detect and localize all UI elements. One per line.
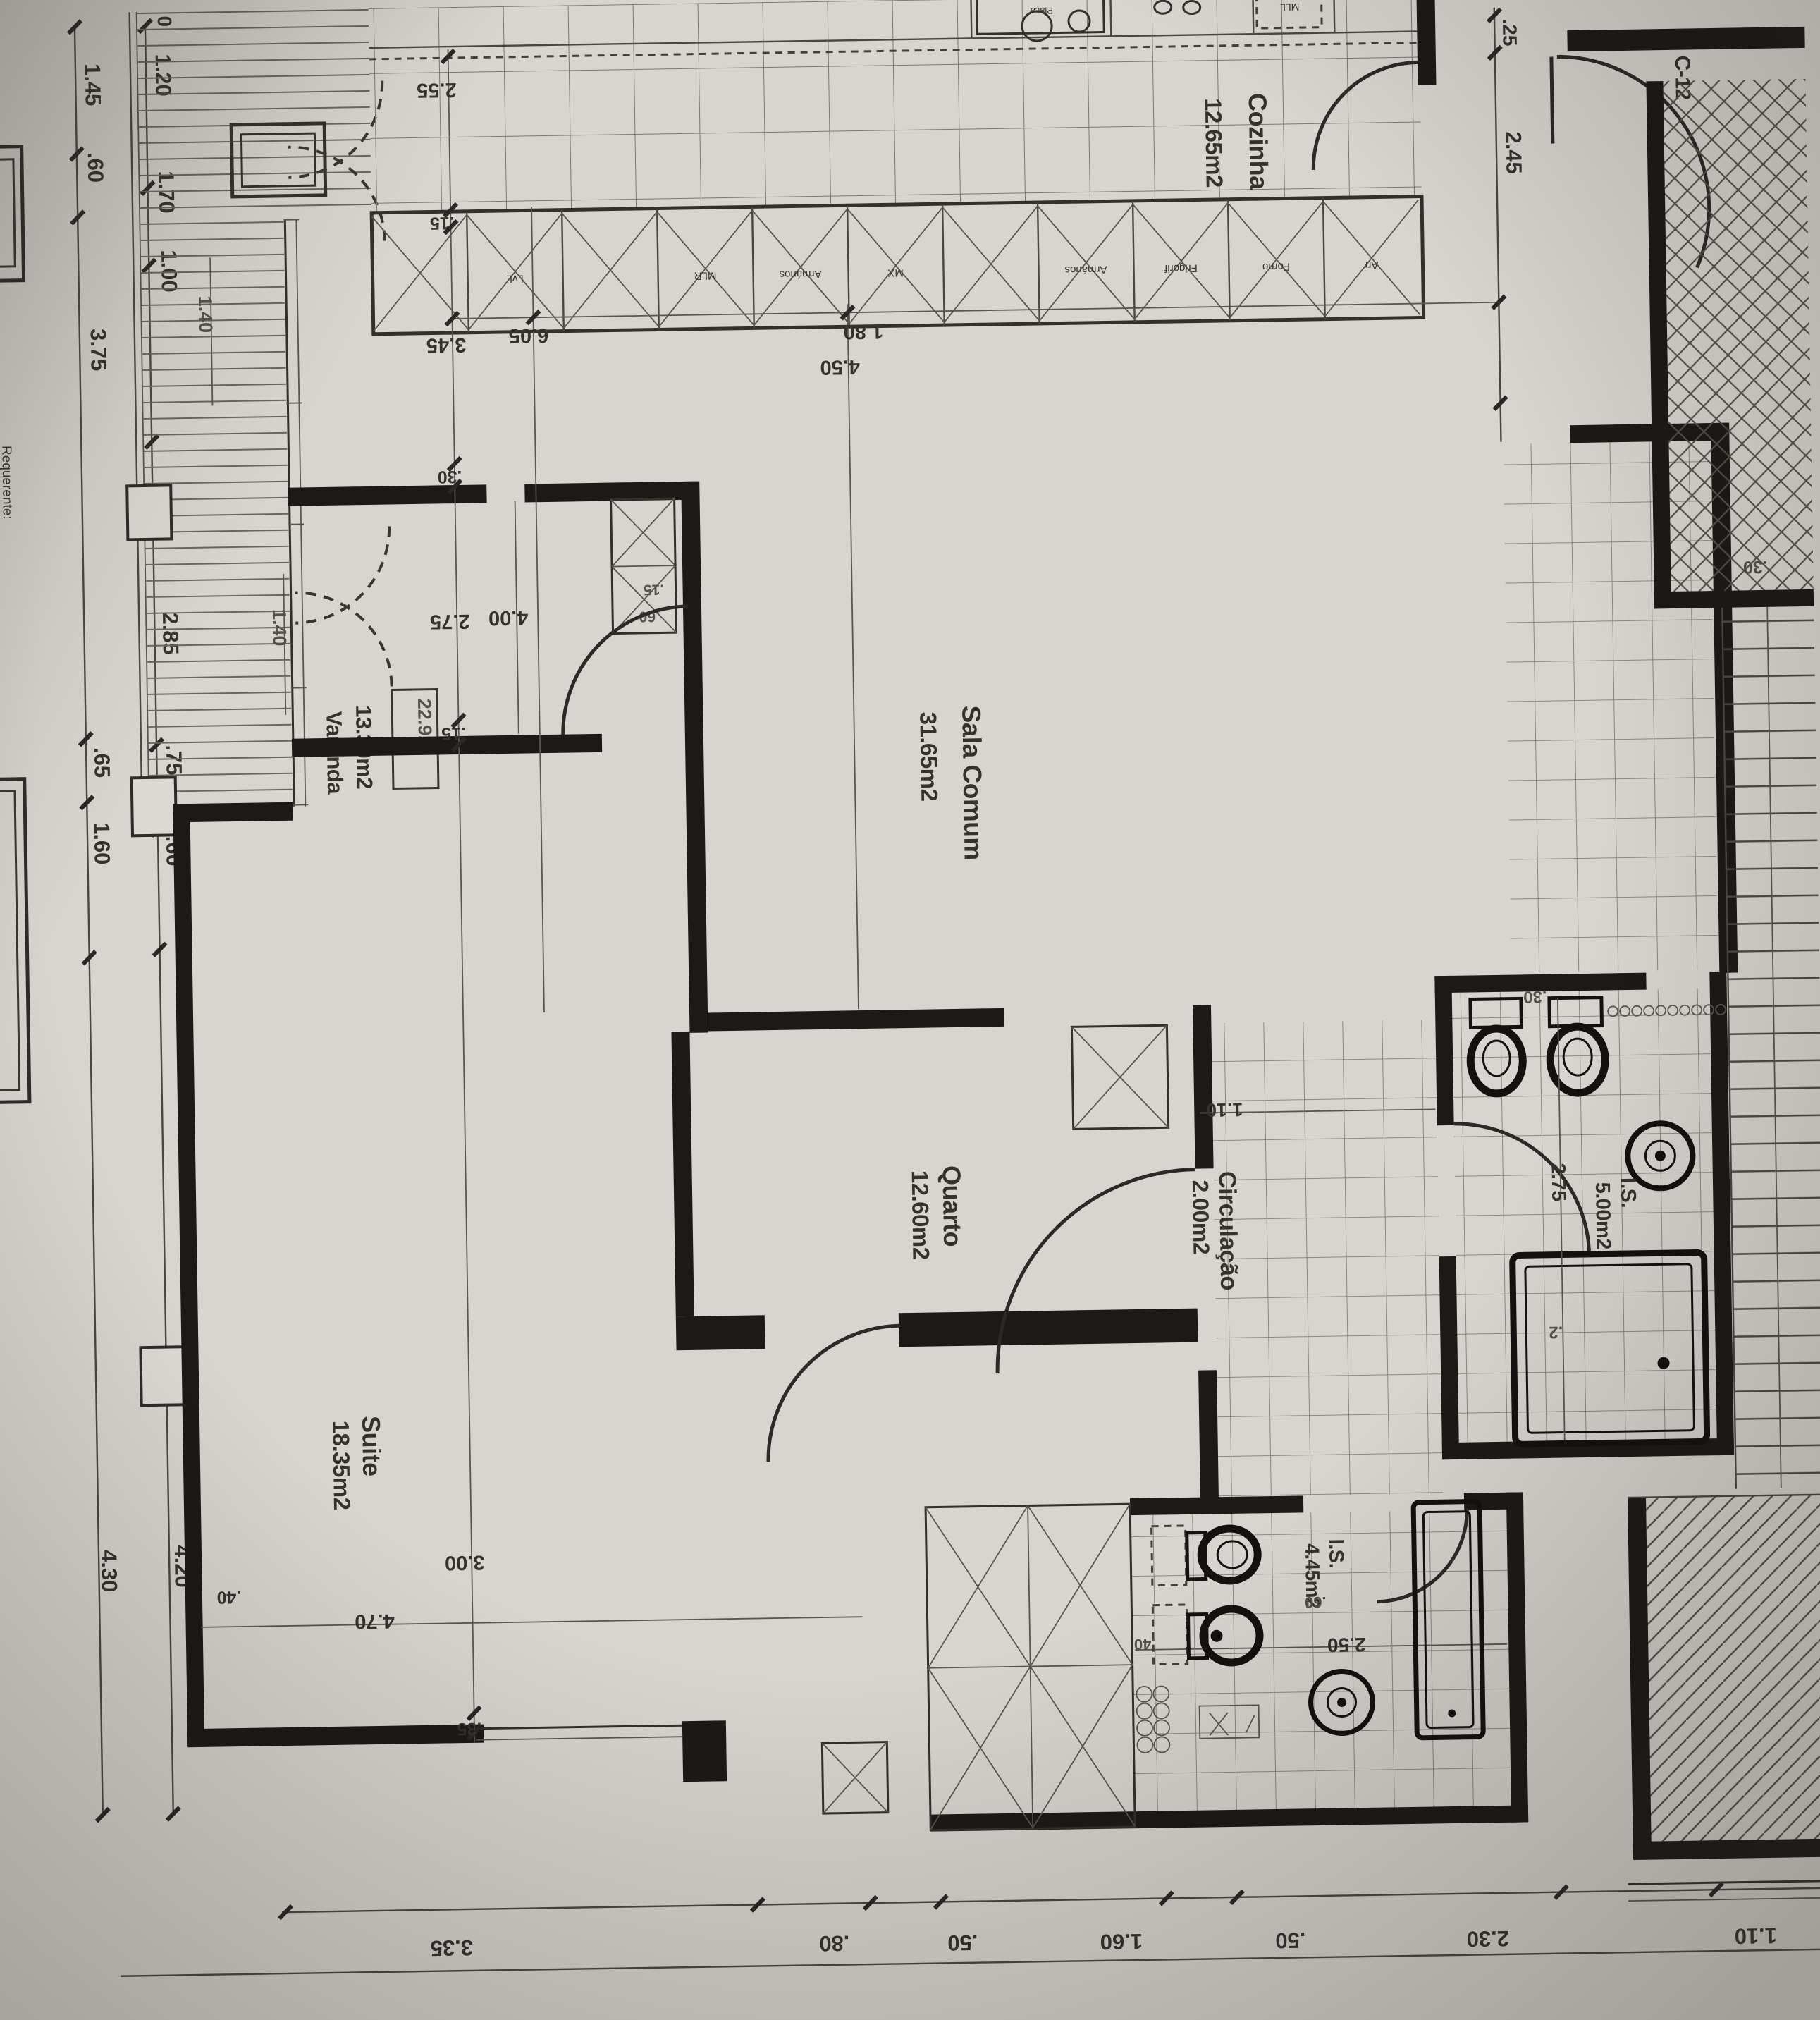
floorplan-photo: Requerente: 0 1.20 1.70 1.00 2.85 .75 1.… [0, 0, 1820, 2020]
corner-shadow [0, 0, 1820, 2020]
